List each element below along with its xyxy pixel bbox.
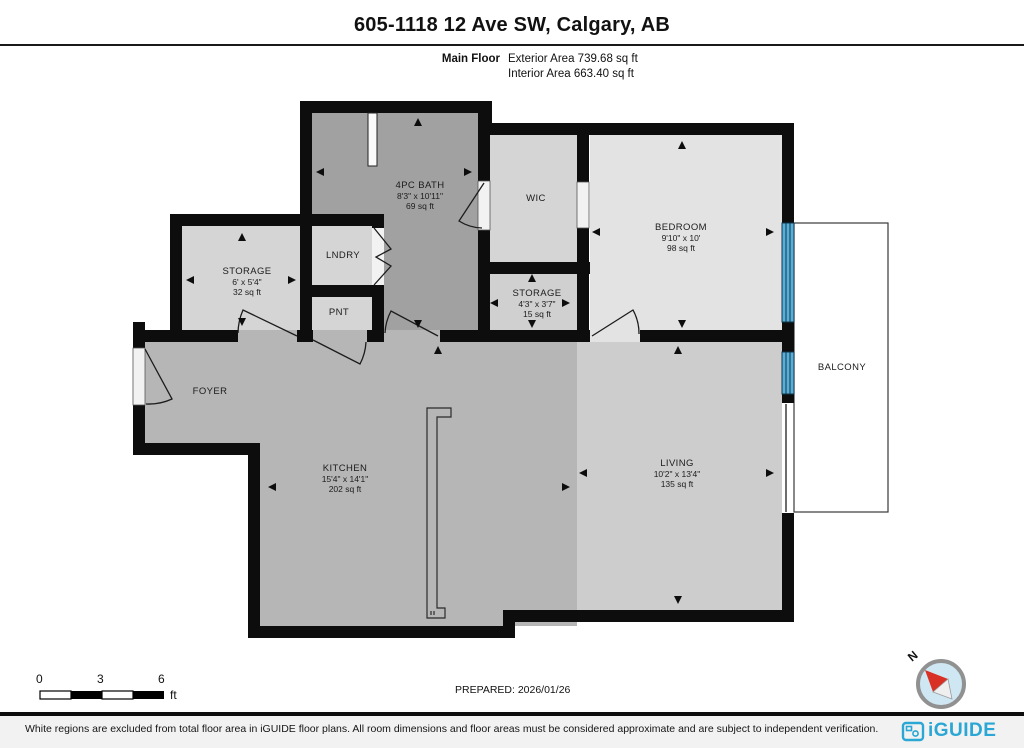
room-name: PNT	[309, 307, 369, 318]
room-dims: 10'2" x 13'4"	[617, 469, 737, 479]
room-label-storage-mid: STORAGE 4'3" x 3'7" 15 sq ft	[492, 288, 582, 319]
closet-door-opening	[577, 182, 589, 228]
entry-door-opening	[133, 348, 145, 405]
room-area: 98 sq ft	[611, 243, 751, 253]
scale-tick-0: 0	[36, 672, 43, 686]
compass-icon: N	[905, 648, 964, 707]
compass-north-label: N	[905, 648, 921, 664]
room-dims: 4'3" x 3'7"	[492, 299, 582, 309]
windows	[782, 223, 794, 394]
room-dims: 6' x 5'4"	[187, 277, 307, 287]
room-label-storage-left: STORAGE 6' x 5'4" 32 sq ft	[187, 266, 307, 297]
room-label-bath: 4PC BATH 8'3" x 10'11" 69 sq ft	[350, 180, 490, 211]
room-dims: 8'3" x 10'11"	[350, 191, 490, 201]
room-area: 15 sq ft	[492, 309, 582, 319]
room-name: LNDRY	[313, 250, 373, 261]
pantry-doorway	[313, 330, 367, 342]
bedroom-window	[782, 223, 794, 322]
room-label-bedroom: BEDROOM 9'10" x 10' 98 sq ft	[611, 222, 751, 253]
room-dims: 15'4" x 14'1"	[285, 474, 405, 484]
brand-logo: iGUIDE	[901, 719, 996, 743]
room-area: 32 sq ft	[187, 287, 307, 297]
scale-unit-label: ft	[170, 688, 177, 702]
prepared-date-label: PREPARED: 2026/01/26	[455, 684, 570, 696]
room-name: LIVING	[617, 458, 737, 469]
room-name: BALCONY	[802, 362, 882, 373]
room-label-living: LIVING 10'2" x 13'4" 135 sq ft	[617, 458, 737, 489]
scale-bar	[40, 691, 164, 699]
room-name: STORAGE	[492, 288, 582, 299]
room-label-kitchen: KITCHEN 15'4" x 14'1" 202 sq ft	[285, 463, 405, 494]
floor-plan-page: 605-1118 12 Ave SW, Calgary, AB Main Flo…	[0, 0, 1024, 748]
room-area: 202 sq ft	[285, 484, 405, 494]
scale-tick-3: 3	[97, 672, 104, 686]
scale-tick-6: 6	[158, 672, 165, 686]
room-label-wic: WIC	[500, 193, 572, 204]
room-label-pantry: PNT	[309, 307, 369, 318]
shower-glass	[368, 113, 377, 166]
room-name: KITCHEN	[285, 463, 405, 474]
room-name: STORAGE	[187, 266, 307, 277]
living-window	[782, 352, 794, 394]
iguide-camera-icon	[901, 719, 925, 743]
brand-name: iGUIDE	[928, 720, 996, 742]
room-name: FOYER	[170, 386, 250, 397]
disclaimer-text: White regions are excluded from total fl…	[25, 723, 878, 735]
room-dims: 9'10" x 10'	[611, 233, 751, 243]
room-area: 69 sq ft	[350, 201, 490, 211]
room-label-laundry: LNDRY	[313, 250, 373, 261]
room-name: BEDROOM	[611, 222, 751, 233]
room-name: WIC	[500, 193, 572, 204]
floor-plan-canvas: N	[0, 0, 1024, 748]
room-label-foyer: FOYER	[170, 386, 250, 397]
room-name: 4PC BATH	[350, 180, 490, 191]
room-area: 135 sq ft	[617, 479, 737, 489]
room-label-balcony: BALCONY	[802, 362, 882, 373]
